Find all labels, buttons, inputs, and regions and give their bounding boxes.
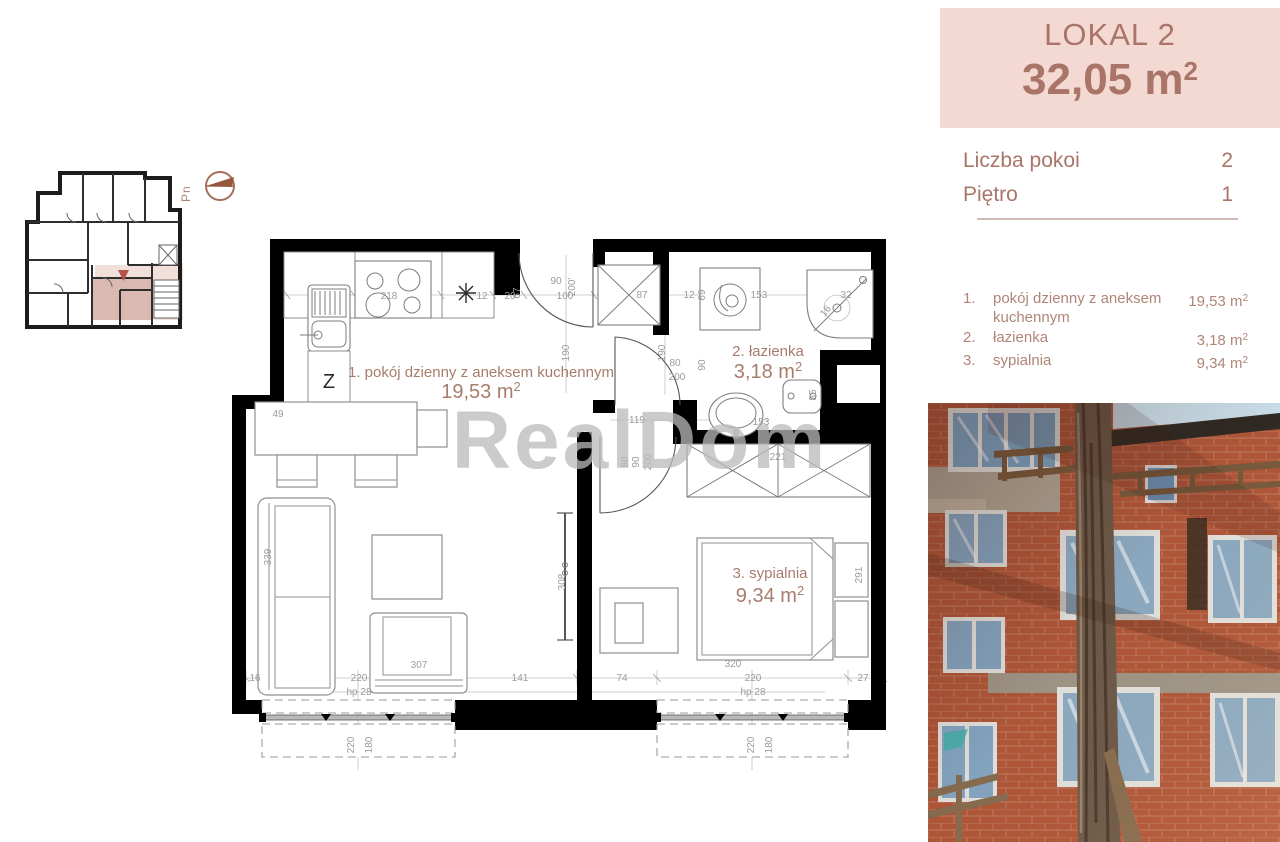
kitchen-sink	[300, 285, 350, 351]
svg-text:180: 180	[764, 736, 775, 753]
svg-text:220: 220	[351, 673, 368, 684]
svg-text:308: 308	[557, 573, 568, 590]
dishwasher-label: Z	[323, 371, 335, 393]
svg-text:180: 180	[364, 736, 375, 753]
detail-value: 1	[1221, 178, 1233, 212]
highlight-unit-dark	[92, 278, 152, 320]
svg-text:27: 27	[857, 673, 869, 684]
svg-text:291: 291	[854, 566, 865, 583]
detail-row-floor: Piętro 1	[963, 178, 1233, 212]
svg-text:220: 220	[346, 736, 357, 753]
svg-text:320: 320	[725, 659, 742, 670]
room-number: 1.	[963, 289, 993, 308]
watermark: RealDom	[452, 395, 828, 486]
svg-text:87: 87	[636, 290, 648, 301]
svg-text:307: 307	[411, 660, 428, 671]
svg-text:hp 28: hp 28	[346, 687, 371, 698]
stairwell	[154, 245, 179, 318]
room-list-item: 1. pokój dzienny z aneksem kuchennym 19,…	[963, 289, 1248, 327]
svg-text:49: 49	[272, 409, 284, 420]
dishwasher: Z	[308, 351, 350, 409]
desk	[600, 588, 678, 653]
entrance-door	[519, 253, 593, 327]
armchair	[370, 613, 467, 693]
sofa	[258, 498, 335, 695]
svg-text:220: 220	[746, 736, 757, 753]
svg-text:190: 190	[657, 344, 668, 361]
room-number: 3.	[963, 351, 993, 370]
svg-text:220: 220	[745, 673, 762, 684]
room-2-title: 2. łazienka	[732, 343, 804, 360]
room-3-area: 9,34 m2	[736, 583, 804, 607]
unit-details: Liczba pokoi 2 Piętro 1	[963, 144, 1233, 212]
room-number: 2.	[963, 328, 993, 347]
svg-text:200': 200'	[567, 278, 578, 297]
coffee-table	[372, 535, 442, 599]
room-area: 19,53 m2	[1188, 289, 1248, 311]
window-living	[259, 700, 458, 757]
room-area: 9,34 m2	[1197, 351, 1248, 373]
dining-island	[255, 402, 447, 487]
room-list-item: 2. łazienka 3,18 m2	[963, 328, 1248, 350]
svg-text:12: 12	[476, 291, 488, 302]
room-3-title: 3. sypialnia	[732, 565, 808, 582]
svg-text:74: 74	[616, 673, 628, 684]
shower	[807, 270, 873, 338]
svg-text:141: 141	[512, 673, 529, 684]
svg-text:218: 218	[381, 291, 398, 302]
mini-floorplan-overview: Pn	[8, 160, 258, 345]
detail-value: 2	[1221, 144, 1233, 178]
room-area: 3,18 m2	[1197, 328, 1248, 350]
floor-plan: Z	[225, 225, 915, 790]
unit-title: LOKAL 2	[940, 17, 1280, 53]
building-photo	[928, 403, 1280, 842]
entry-wardrobe	[598, 265, 660, 325]
unit-area: 32,05 m2	[940, 55, 1280, 105]
room-list: 1. pokój dzienny z aneksem kuchennym 19,…	[963, 289, 1248, 374]
svg-text:67: 67	[512, 287, 523, 299]
ceiling-point-icon	[456, 283, 476, 303]
svg-text:339: 339	[263, 548, 274, 565]
svg-text:153: 153	[751, 290, 768, 301]
room-2-area: 3,18 m2	[734, 359, 802, 383]
room-list-item: 3. sypialnia 9,34 m2	[963, 351, 1248, 373]
compass-icon	[206, 172, 234, 200]
svg-text:200: 200	[669, 372, 686, 383]
shaft	[837, 365, 880, 403]
svg-text:hp 28: hp 28	[740, 687, 765, 698]
svg-text:90: 90	[697, 359, 708, 371]
svg-text:69: 69	[697, 289, 708, 301]
room-1-title: 1. pokój dzienny z aneksem kuchennym	[348, 364, 614, 381]
svg-text:80: 80	[669, 358, 681, 369]
detail-label: Piętro	[963, 178, 1018, 212]
svg-text:16: 16	[249, 673, 261, 684]
svg-text:90: 90	[550, 276, 562, 287]
flyer-page: Pn	[0, 0, 1280, 842]
north-label: Pn	[179, 185, 193, 202]
detail-label: Liczba pokoi	[963, 144, 1080, 178]
detail-row-rooms: Liczba pokoi 2	[963, 144, 1233, 178]
svg-text:32: 32	[840, 290, 852, 301]
svg-text:12: 12	[683, 290, 695, 301]
svg-text:190: 190	[561, 344, 572, 361]
room-name: sypialnia	[993, 351, 1171, 370]
stove	[355, 261, 431, 318]
divider-line	[977, 218, 1238, 220]
room-name: łazienka	[993, 328, 1171, 347]
unit-header-panel: LOKAL 2 32,05 m2	[940, 8, 1280, 128]
room-name: pokój dzienny z aneksem kuchennym	[993, 289, 1171, 327]
